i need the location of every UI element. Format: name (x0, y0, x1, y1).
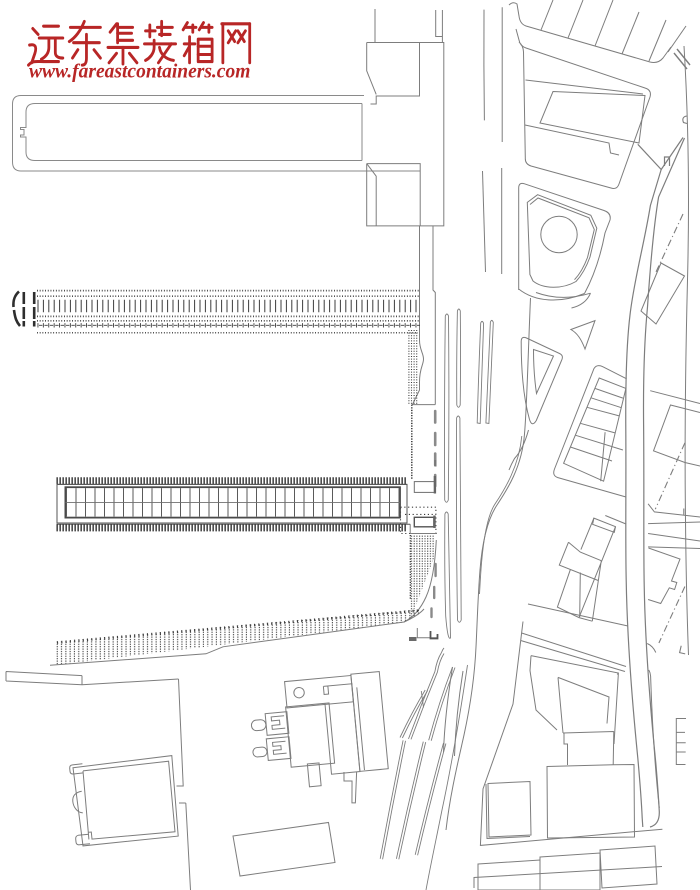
svg-text:www.fareastcontainers.com: www.fareastcontainers.com (29, 62, 250, 83)
